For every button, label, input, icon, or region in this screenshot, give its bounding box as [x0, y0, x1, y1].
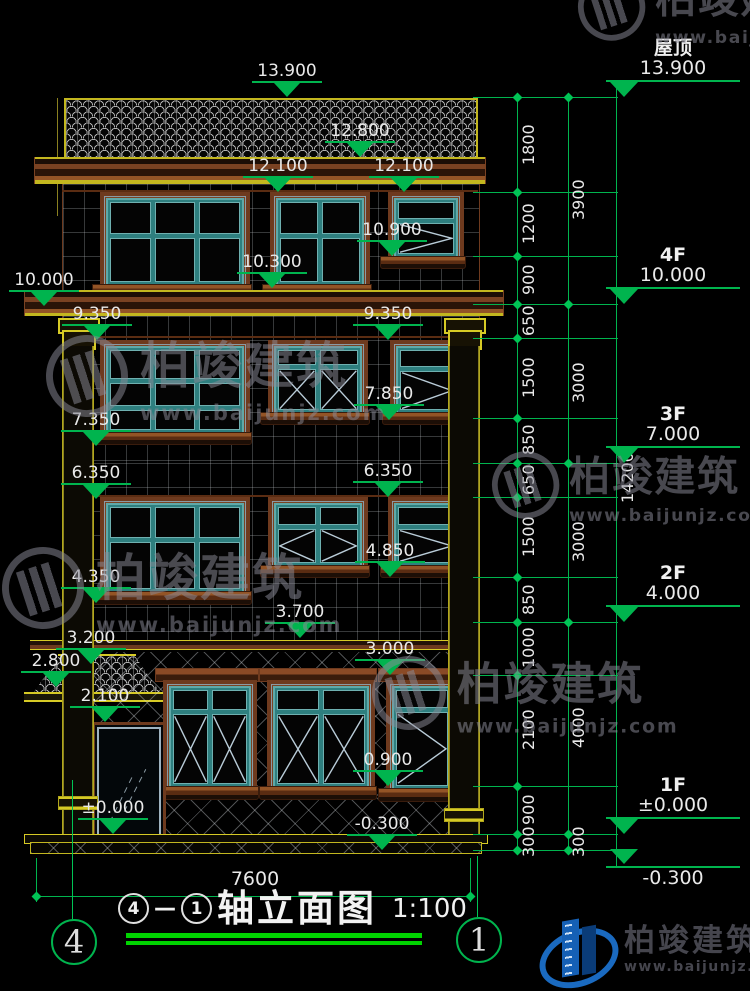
dim-tick — [32, 892, 42, 902]
dim-label: 300 — [571, 807, 587, 877]
dim-label: 2100 — [521, 695, 537, 765]
dim-total-line — [616, 83, 617, 866]
ext-line — [473, 675, 618, 676]
level-triangle-icon — [347, 143, 373, 157]
dim-label: 3000 — [571, 348, 587, 418]
axis-leader-left — [72, 780, 73, 919]
ext-line — [473, 850, 618, 851]
floor-label: 2F — [606, 563, 740, 583]
elevation-mark: 12.800 — [325, 122, 395, 157]
elevation-mark: 3.700 — [265, 603, 335, 638]
level-triangle-icon — [375, 326, 401, 340]
floor-label: 3F — [606, 404, 740, 424]
level-triangle-icon — [610, 849, 638, 864]
elevation-mark: 13.900 — [252, 62, 322, 97]
elevation-mark: 12.100 — [243, 157, 313, 192]
floor-label: 屋顶 — [606, 38, 740, 58]
floor-elevation: 7.000 — [606, 424, 740, 444]
axis-bubble-left: 4 — [51, 919, 97, 965]
level-triangle-icon — [610, 448, 638, 463]
floor-elevation: -0.300 — [606, 868, 740, 888]
title-underline-1 — [126, 933, 422, 938]
level-triangle-icon — [83, 485, 109, 499]
floor-elevation: ±0.000 — [606, 795, 740, 815]
elevation-mark: 12.100 — [369, 157, 439, 192]
dim-label: 1800 — [521, 110, 537, 180]
elevation-mark: 10.300 — [237, 253, 307, 288]
level-triangle-icon — [287, 624, 313, 638]
elevation-mark: ±0.000 — [78, 799, 148, 834]
level-triangle-icon — [84, 326, 110, 340]
ext-line — [473, 304, 618, 305]
floor-marker-3f: 3F 7.000 — [606, 404, 740, 463]
dim-chain-line-inner — [517, 97, 518, 850]
elevation-mark: 9.350 — [62, 305, 132, 340]
axis-number: 4 — [64, 923, 84, 961]
level-triangle-icon — [376, 406, 402, 420]
ext-line — [473, 256, 618, 257]
brand-logo: 柏竣建筑 www.baijunjz.com — [538, 914, 750, 986]
level-triangle-icon — [92, 708, 118, 722]
brand-logo-icon — [538, 914, 616, 986]
dim-label: 1500 — [521, 502, 537, 572]
level-triangle-icon — [83, 432, 109, 446]
dim-tick — [466, 892, 476, 902]
elevation-mark: 4.350 — [61, 568, 131, 603]
dim-tick — [564, 459, 574, 469]
ext-line — [473, 192, 618, 193]
dim-tick — [564, 93, 574, 103]
ext-line — [473, 577, 618, 578]
elevation-mark: 4.850 — [355, 542, 425, 577]
elevation-mark: 6.350 — [353, 462, 423, 497]
ext-line — [473, 338, 618, 339]
title-text: 轴立面图 — [217, 890, 377, 927]
ext-line — [473, 497, 618, 498]
floor-marker-2f: 2F 4.000 — [606, 563, 740, 622]
level-triangle-icon — [610, 82, 638, 97]
floor-marker-1f: 1F ±0.000 — [606, 775, 740, 834]
floor-elevation: 13.900 — [606, 58, 740, 78]
ext-line — [473, 622, 618, 623]
level-triangle-icon — [83, 589, 109, 603]
elevation-mark: 2.800 — [21, 652, 91, 687]
floor-marker-ground: -0.300 — [606, 849, 740, 888]
elevation-mark: 6.350 — [61, 464, 131, 499]
brand-logo-url: www.baijunjz.com — [624, 959, 750, 975]
level-triangle-icon — [610, 289, 638, 304]
floor-marker-4f: 4F 10.000 — [606, 245, 740, 304]
floor-elevation: 4.000 — [606, 583, 740, 603]
ext-line — [473, 418, 618, 419]
level-triangle-icon — [610, 819, 638, 834]
level-triangle-icon — [31, 292, 57, 306]
floor-label: 4F — [606, 245, 740, 265]
dim-label: 300 — [521, 807, 537, 877]
dim-tick — [564, 300, 574, 310]
brand-logo-text: 柏竣建筑 — [624, 925, 750, 957]
level-triangle-icon — [43, 673, 69, 687]
level-triangle-icon — [265, 178, 291, 192]
title-dash: — — [154, 896, 176, 921]
ext-line — [473, 834, 618, 835]
level-triangle-icon — [610, 607, 638, 622]
ext-line — [473, 786, 618, 787]
elevation-mark: 10.000 — [9, 271, 79, 306]
title-scale: 1:100 — [392, 894, 467, 924]
floor-elevation: 10.000 — [606, 265, 740, 285]
annotation-layer: 1800 1200 900 650 1500 850 650 1500 850 … — [0, 0, 750, 991]
cad-elevation-screenshot: 1800 1200 900 650 1500 850 650 1500 850 … — [0, 0, 750, 991]
level-triangle-icon — [377, 563, 403, 577]
axis-leader-right — [477, 856, 478, 917]
floor-marker-roof: 屋顶 13.900 — [606, 38, 740, 97]
ext-line — [473, 97, 618, 98]
floor-label: 1F — [606, 775, 740, 795]
elevation-mark: 2.100 — [70, 687, 140, 722]
elevation-mark: 9.350 — [353, 305, 423, 340]
level-triangle-icon — [274, 83, 300, 97]
ext-line — [473, 463, 618, 464]
level-triangle-icon — [375, 772, 401, 786]
axis-number: 1 — [469, 921, 489, 959]
elevation-mark: 0.900 — [353, 751, 423, 786]
level-triangle-icon — [377, 661, 403, 675]
dim-tick — [564, 618, 574, 628]
title-axis-start: 4 — [118, 893, 149, 924]
title-underline-2 — [126, 941, 422, 945]
dim-label: 1000 — [521, 613, 537, 683]
elevation-mark: -0.300 — [347, 815, 417, 850]
level-triangle-icon — [369, 836, 395, 850]
dim-label: 4000 — [571, 693, 587, 763]
elevation-mark: 10.900 — [357, 221, 427, 256]
elevation-mark: 7.850 — [354, 385, 424, 420]
drawing-title: 4 — 1 轴立面图 1:100 — [118, 890, 467, 927]
dim-tick — [513, 93, 523, 103]
elevation-mark: 3.000 — [355, 640, 425, 675]
elevation-mark: 7.350 — [61, 411, 131, 446]
level-triangle-icon — [379, 242, 405, 256]
level-triangle-icon — [100, 820, 126, 834]
level-triangle-icon — [375, 483, 401, 497]
level-triangle-icon — [391, 178, 417, 192]
dim-label: 3000 — [571, 507, 587, 577]
dim-label: 3900 — [571, 165, 587, 235]
dim-label: 1500 — [521, 343, 537, 413]
level-triangle-icon — [259, 274, 285, 288]
title-axis-end: 1 — [181, 893, 212, 924]
